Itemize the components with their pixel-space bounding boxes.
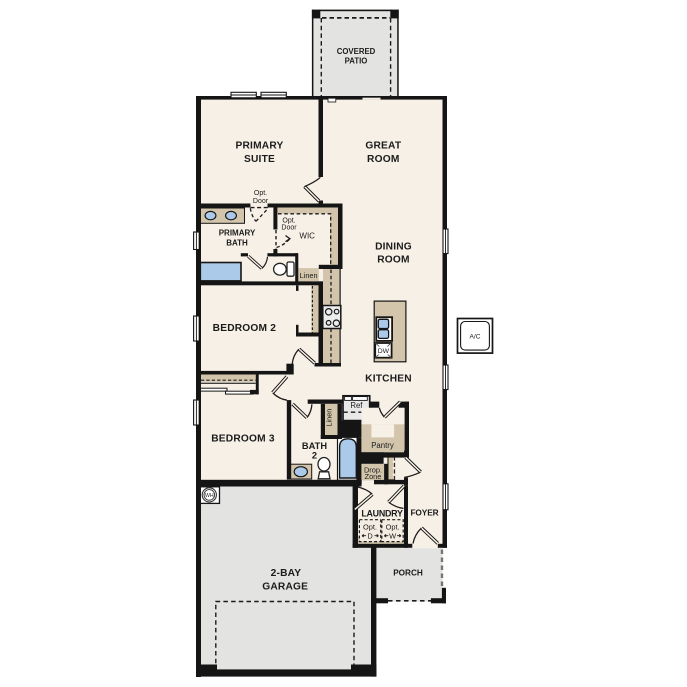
svg-text:Linen: Linen xyxy=(325,409,334,427)
svg-text:BEDROOM 2: BEDROOM 2 xyxy=(213,323,277,334)
svg-text:PORCH: PORCH xyxy=(393,569,423,578)
svg-text:BATH: BATH xyxy=(226,238,248,247)
svg-text:DINING: DINING xyxy=(375,242,412,253)
svg-text:A/C: A/C xyxy=(470,334,481,341)
svg-text:D: D xyxy=(367,532,372,541)
svg-text:Opt.: Opt. xyxy=(282,217,295,224)
svg-text:Opt.: Opt. xyxy=(254,190,267,197)
svg-text:GREAT: GREAT xyxy=(365,140,401,151)
svg-text:Door: Door xyxy=(281,225,297,232)
svg-text:BEDROOM 3: BEDROOM 3 xyxy=(211,433,275,444)
svg-text:GARAGE: GARAGE xyxy=(262,581,308,592)
svg-text:FOYER: FOYER xyxy=(410,508,438,518)
svg-text:LAUNDRY: LAUNDRY xyxy=(361,509,403,519)
svg-text:PATIO: PATIO xyxy=(345,57,368,66)
svg-text:Pantry: Pantry xyxy=(371,441,394,450)
svg-text:Opt.: Opt. xyxy=(363,523,377,532)
svg-text:Opt.: Opt. xyxy=(386,523,400,532)
svg-text:2-BAY: 2-BAY xyxy=(271,568,302,579)
svg-text:COVERED: COVERED xyxy=(337,47,376,56)
svg-text:DW: DW xyxy=(378,348,390,355)
svg-text:Linen: Linen xyxy=(300,271,318,280)
svg-text:ROOM: ROOM xyxy=(367,154,400,165)
svg-text:Zone: Zone xyxy=(365,472,382,481)
svg-text:PRIMARY: PRIMARY xyxy=(236,140,284,151)
svg-text:2: 2 xyxy=(312,450,317,460)
svg-text:PRIMARY: PRIMARY xyxy=(219,228,256,237)
svg-text:BATH: BATH xyxy=(302,441,327,451)
svg-text:KITCHEN: KITCHEN xyxy=(365,373,412,384)
svg-text:Ref: Ref xyxy=(350,401,363,410)
svg-text:ROOM: ROOM xyxy=(377,255,410,266)
svg-text:WIC: WIC xyxy=(299,232,315,241)
svg-text:WH: WH xyxy=(205,493,214,499)
svg-text:Door: Door xyxy=(253,198,269,205)
svg-text:SUITE: SUITE xyxy=(244,154,275,165)
svg-text:W: W xyxy=(389,532,396,541)
